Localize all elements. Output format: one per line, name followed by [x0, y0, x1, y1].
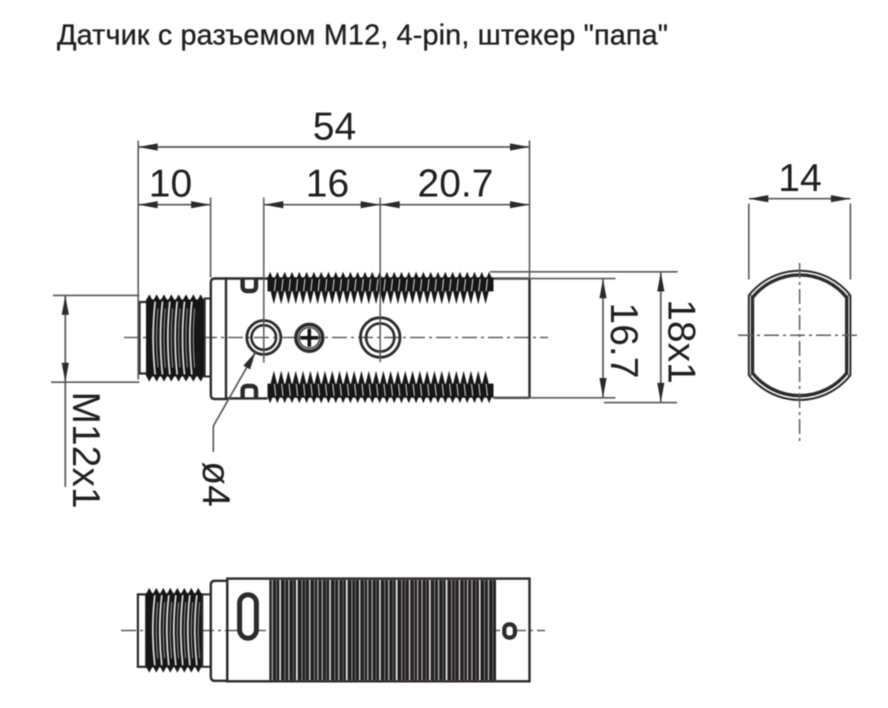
svg-text:20.7: 20.7: [418, 163, 494, 206]
svg-text:16: 16: [306, 163, 349, 206]
svg-text:ø4: ø4: [194, 461, 237, 507]
svg-text:18x1: 18x1: [660, 299, 703, 384]
svg-text:Датчик с разъемом M12, 4-pin,: Датчик с разъемом M12, 4-pin, штекер "па…: [57, 20, 668, 52]
svg-text:54: 54: [313, 106, 356, 149]
svg-text:14: 14: [778, 157, 821, 200]
svg-text:16.7: 16.7: [602, 303, 645, 379]
svg-text:10: 10: [149, 163, 192, 206]
svg-text:M12x1: M12x1: [64, 391, 107, 508]
